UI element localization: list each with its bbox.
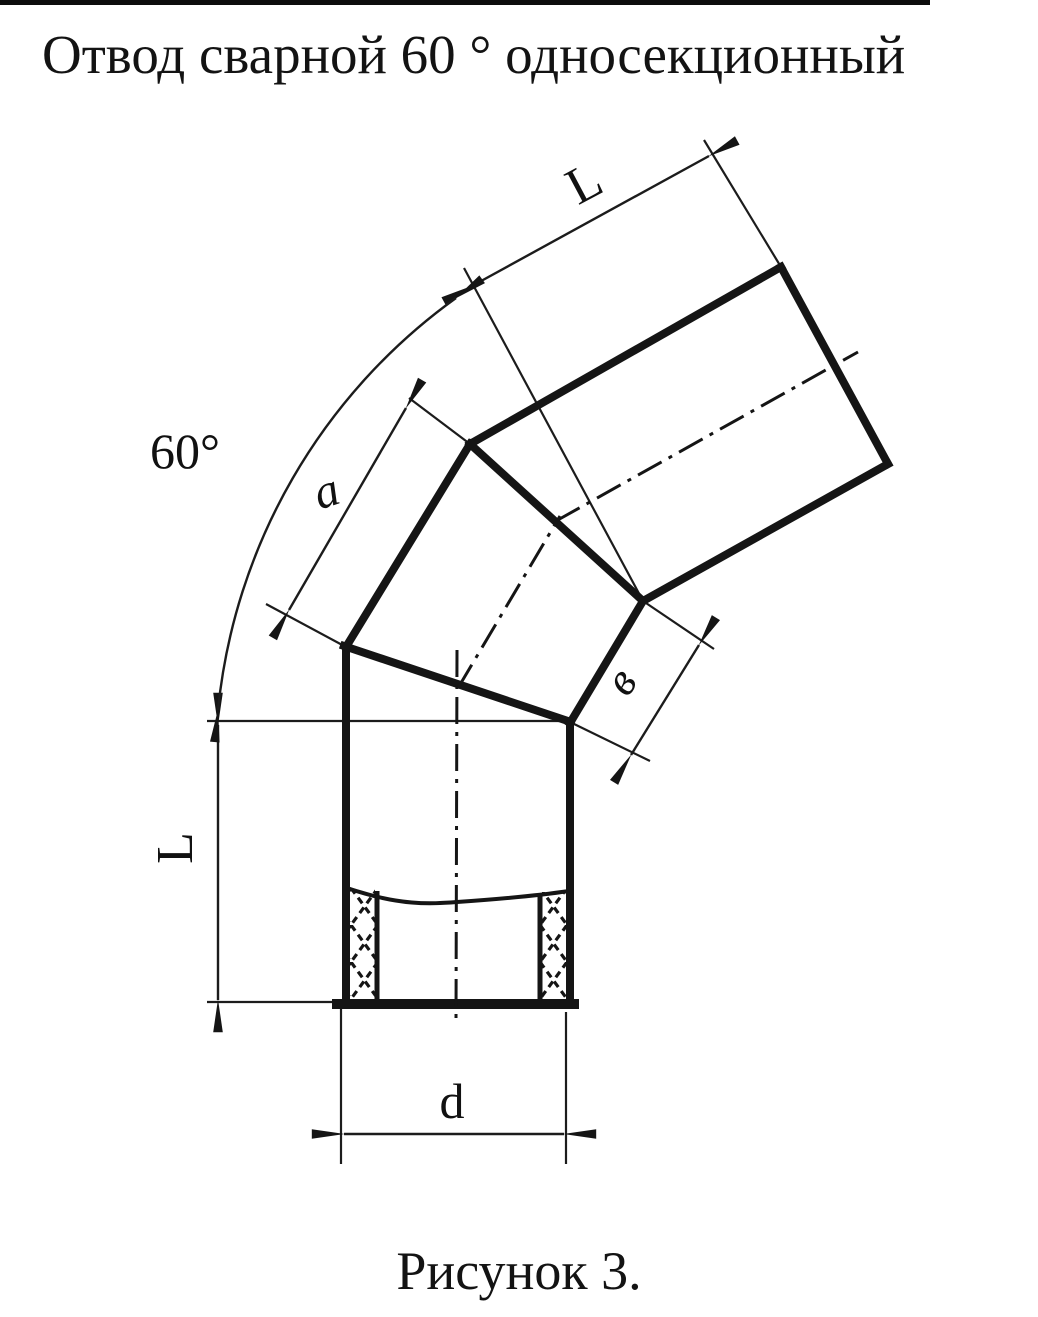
label-top-length: L (557, 151, 612, 216)
label-section-short: в (594, 658, 647, 704)
wall-cross-sections (347, 888, 569, 1001)
label-angle: 60° (150, 423, 220, 479)
centerline-bottom-pipe (456, 650, 457, 1022)
dimension-lines (218, 156, 709, 1134)
centerline-middle-section (458, 516, 560, 688)
left-wall-hatch (349, 889, 375, 1001)
middle-section-left-face (346, 444, 470, 647)
label-section-length: a (307, 462, 346, 520)
centerlines (456, 352, 858, 1022)
centerline-top-pipe (556, 352, 858, 521)
figure-caption: Рисунок 3. (0, 1240, 1038, 1302)
elbow-drawing: L a в L d 60° (0, 0, 1038, 1317)
ext-line-section-lower (266, 604, 346, 647)
pipe-outline (337, 267, 888, 1004)
top-pipe-bottom-edge (643, 464, 888, 601)
scanned-page: Отвод сварной 60 ° односекционный (0, 0, 1038, 1317)
ext-line-short-upper (643, 601, 714, 649)
label-diameter: d (440, 1073, 465, 1129)
label-left-length: L (147, 832, 204, 864)
pipe-break-line (347, 888, 569, 903)
right-wall-hatch (542, 892, 568, 1001)
top-pipe-top-edge (470, 267, 781, 444)
dim-line-section-short (631, 645, 699, 755)
ext-line-top-length-right (704, 140, 781, 267)
ext-line-section-upper (409, 398, 470, 444)
